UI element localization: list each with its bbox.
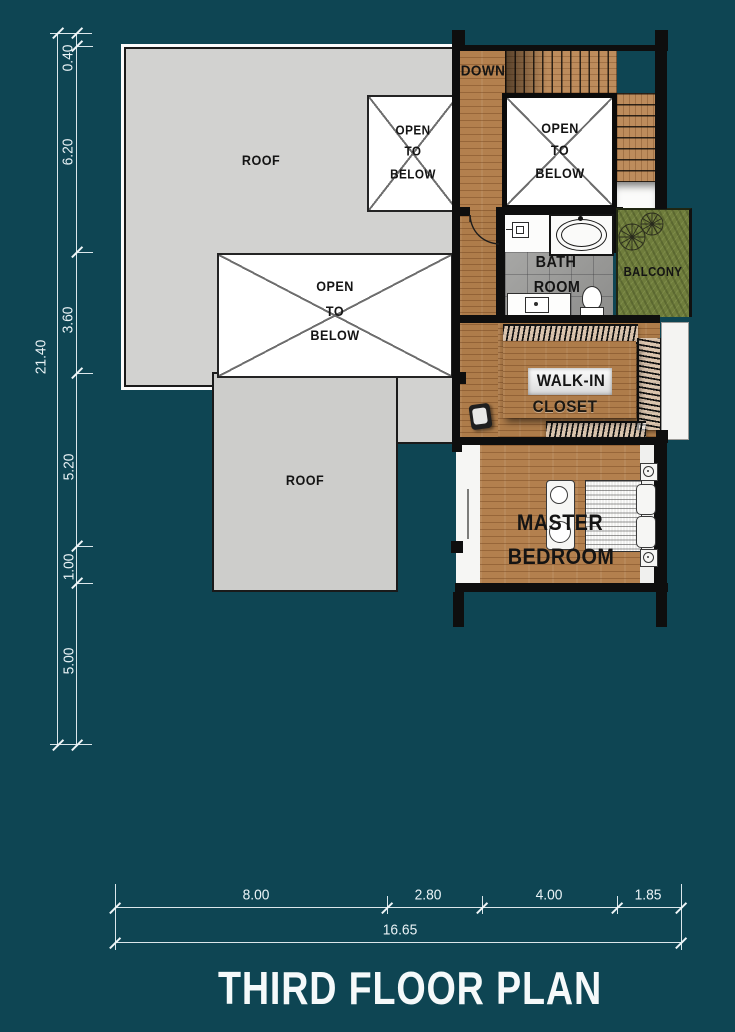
wardrobe-right	[637, 338, 662, 430]
open-mid-label-3: BELOW	[310, 327, 359, 343]
wall-basin-icon	[512, 222, 529, 238]
lamp-icon	[643, 466, 654, 477]
wall-right-upper	[655, 45, 667, 208]
column-bottom-right	[656, 592, 667, 627]
dim-h-3: 1.85	[635, 887, 662, 904]
column-bottom-left	[453, 592, 464, 627]
column-top-left	[452, 30, 465, 46]
roof-upper-extension	[394, 383, 457, 444]
bed-pillow-top	[636, 484, 656, 515]
dim-ext	[77, 546, 93, 547]
open-mid-label-1: OPEN	[316, 278, 354, 294]
lamp-icon	[643, 552, 654, 563]
balcony-column	[655, 196, 667, 209]
roof-upper-label: ROOF	[242, 152, 280, 168]
bath-label-2: ROOM	[534, 279, 581, 297]
wall-left-jog	[452, 372, 466, 384]
bathtub-icon	[549, 214, 614, 256]
nightstand-bottom	[640, 549, 658, 567]
wall-top	[452, 45, 668, 51]
open-to-below-top: OPEN TO BELOW	[367, 95, 459, 212]
dim-h-0: 8.00	[243, 887, 270, 904]
closet-right-ledge	[661, 322, 689, 440]
bedroom-window	[467, 489, 469, 539]
stairs-right-run	[617, 93, 655, 182]
nightstand-top	[640, 463, 658, 481]
master-label-2: BEDROOM	[508, 544, 615, 570]
dim-line-horizontal-outer	[115, 942, 681, 943]
dim-line-vertical-outer	[57, 33, 58, 745]
dim-h-2: 4.00	[536, 887, 563, 904]
roof-lower-label: ROOF	[286, 472, 324, 488]
dim-v-total: 21.40	[33, 340, 50, 375]
dim-ext	[77, 583, 93, 584]
dim-h-total: 16.65	[383, 922, 418, 939]
dim-h-1: 2.80	[415, 887, 442, 904]
plant-icon	[618, 211, 668, 259]
open-to-below-stairwell: OPEN TO BELOW	[502, 93, 617, 210]
open-stair-label-2: TO	[550, 142, 568, 158]
floor-plan-sheet: ROOF ROOF OPEN TO BELOW OPEN TO BELOW OP…	[0, 0, 735, 1032]
door-swing-icon	[466, 212, 500, 248]
dim-v-2: 3.60	[60, 307, 77, 334]
open-top-label-3: BELOW	[390, 166, 436, 181]
toilet-icon	[579, 286, 605, 318]
bedroom-left-stub-top	[452, 443, 462, 452]
open-top-label-2: TO	[405, 144, 422, 159]
dim-v-3: 5.20	[61, 454, 78, 481]
balcony-label: BALCONY	[624, 265, 683, 279]
bedroom-wall-bottom	[455, 583, 668, 592]
bedroom-wall-top	[458, 437, 660, 445]
stairs-right-runout	[617, 182, 655, 208]
stairs-top-run-shadow	[505, 50, 617, 93]
bedroom-left-stub-mid	[451, 541, 463, 553]
closet-label-1: WALK-IN	[537, 371, 606, 391]
open-stair-label-1: OPEN	[541, 120, 579, 136]
open-stair-label-3: BELOW	[535, 165, 584, 181]
column-top-right	[655, 30, 668, 46]
open-top-label-1: OPEN	[396, 122, 431, 137]
wall-left-corridor	[452, 51, 460, 443]
dim-v-1: 6.20	[60, 139, 77, 166]
plan-title: THIRD FLOOR PLAN	[218, 961, 602, 1015]
dim-line-horizontal-inner	[115, 907, 681, 908]
closet-label-2: CLOSET	[533, 397, 598, 417]
stool-icon	[468, 403, 492, 431]
down-label: DOWN	[461, 63, 506, 80]
dim-v-0: 0.40	[60, 45, 77, 72]
dim-v-5: 5.00	[61, 648, 78, 675]
dim-v-4: 1.00	[61, 554, 78, 581]
dim-ext	[77, 373, 93, 374]
open-to-below-middle: OPEN TO BELOW	[217, 253, 453, 378]
dim-ext	[77, 252, 93, 253]
closet-wall-top	[455, 315, 660, 323]
dim-ext	[77, 46, 93, 47]
master-label-1: MASTER	[517, 510, 603, 536]
open-mid-label-2: TO	[326, 303, 344, 319]
bath-label-1: BATH	[536, 254, 577, 272]
bed-pillow-bottom	[636, 516, 656, 548]
